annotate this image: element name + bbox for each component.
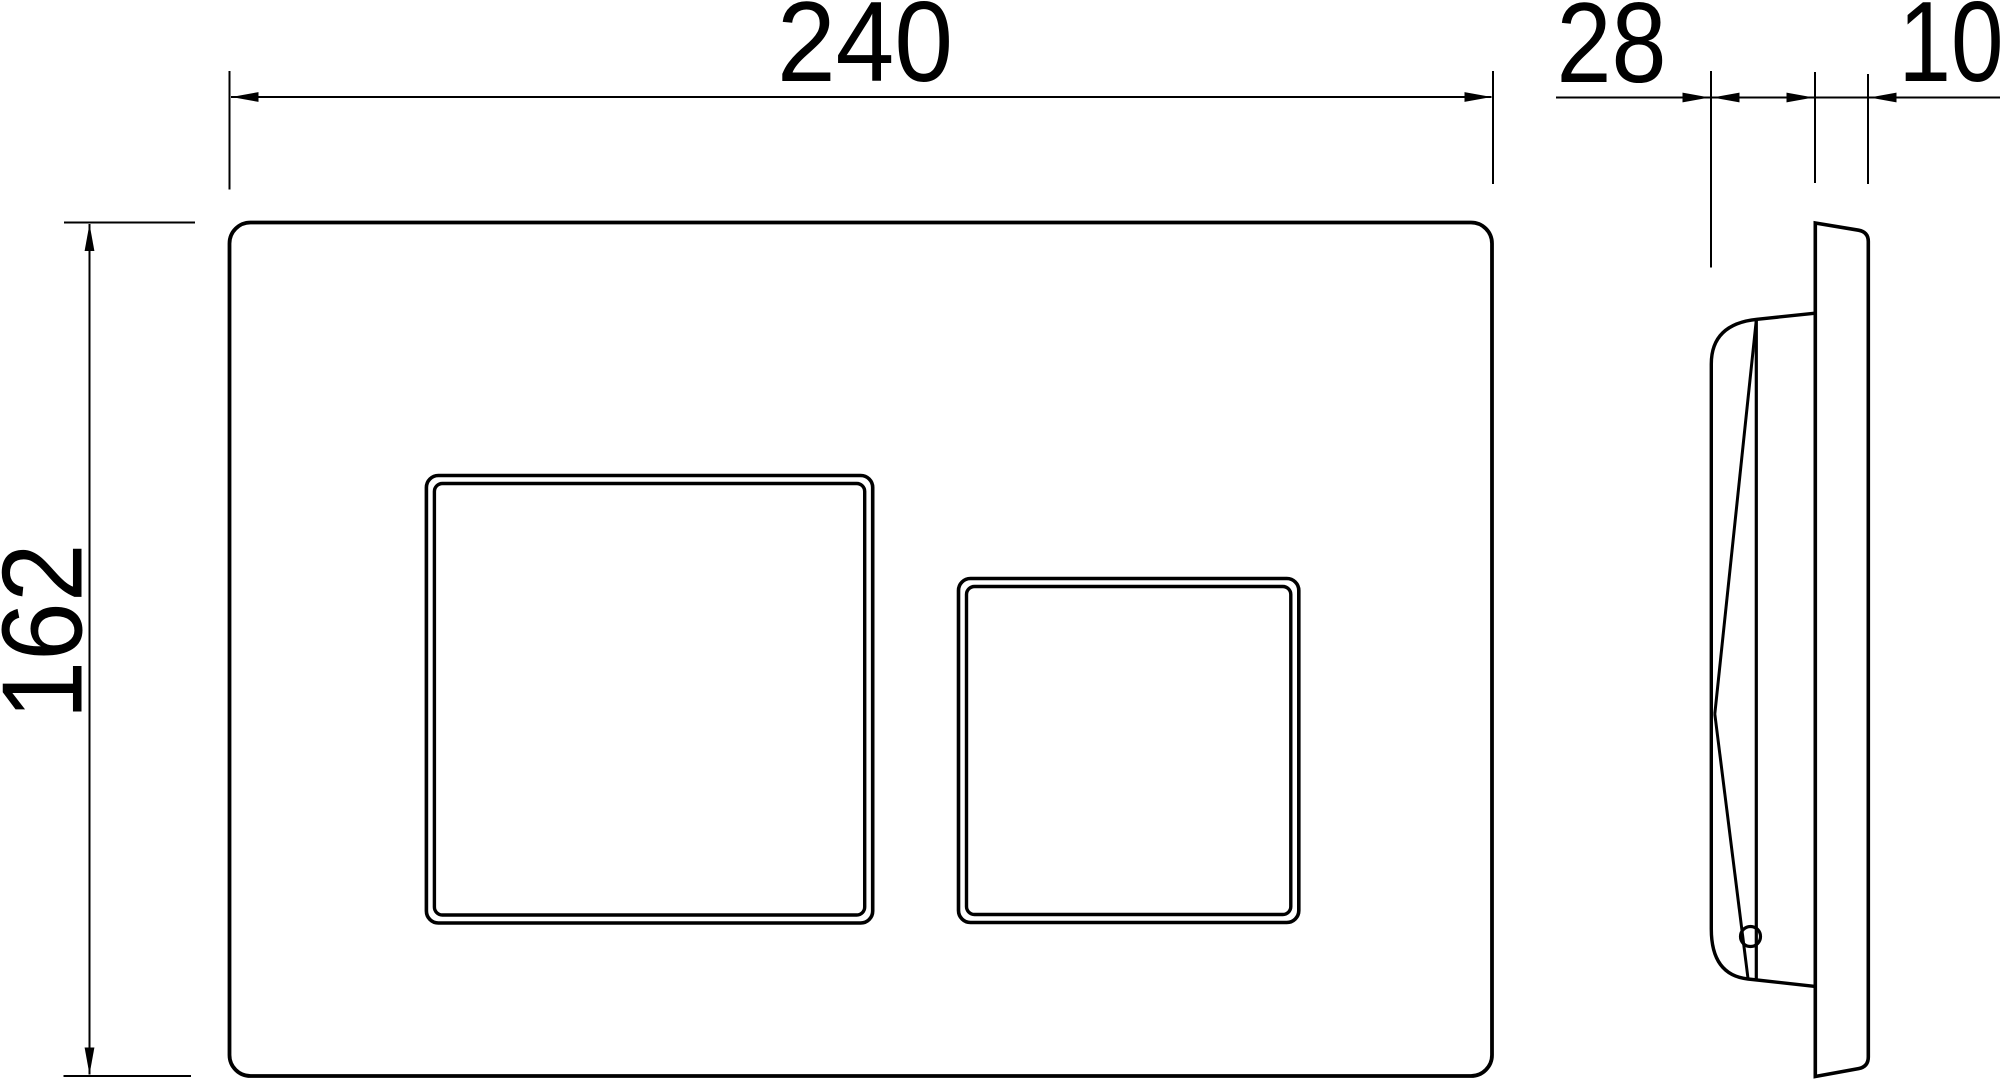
svg-text:162: 162 [0,544,107,720]
svg-text:28: 28 [1557,0,1667,107]
svg-text:240: 240 [777,0,953,106]
svg-text:10: 10 [1899,0,2000,106]
